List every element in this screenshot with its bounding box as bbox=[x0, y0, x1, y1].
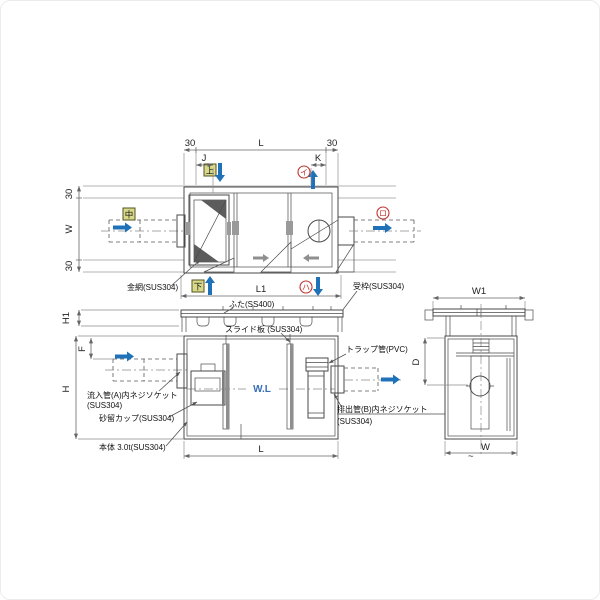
dim-W1: W1 bbox=[472, 286, 486, 297]
dim-H: H bbox=[61, 385, 72, 392]
marker-ro-label: ロ bbox=[379, 209, 387, 218]
lid-hook-1 bbox=[197, 317, 209, 326]
dim-L-plan: L bbox=[258, 138, 263, 149]
dim-W-side: W bbox=[481, 442, 490, 453]
dim-30-bottom: 30 bbox=[64, 261, 75, 272]
marker-top-inlet: 上 bbox=[204, 163, 225, 182]
partition-1-tab bbox=[232, 221, 239, 235]
slide-plate-label: スライド板 (SUS304) bbox=[225, 324, 303, 334]
dim-K: K bbox=[315, 153, 322, 164]
dotted-baffle-3 bbox=[336, 244, 354, 272]
body-label: 本体 3.0t(SUS304) bbox=[99, 442, 166, 452]
side-lid bbox=[425, 305, 533, 336]
dim-F: F bbox=[77, 346, 88, 352]
marker-top-label: 上 bbox=[206, 166, 215, 176]
marker-outlet-i: イ bbox=[298, 166, 318, 189]
H1-dimension: H1 bbox=[61, 310, 179, 326]
dim-30-left: 30 bbox=[185, 138, 196, 149]
dim-L-front: L bbox=[258, 444, 263, 455]
marker-outlet-ha: ハ bbox=[300, 277, 323, 296]
inlet-label-1: 流入管(A)内ネジソケット bbox=[87, 390, 178, 400]
marker-bottom-inlet: 下 bbox=[192, 276, 215, 295]
lid-label: ふた(SS400) bbox=[229, 300, 275, 309]
W1-dimension: W1 bbox=[433, 286, 525, 309]
wire-mesh-label: 金網(SUS304) bbox=[127, 282, 178, 292]
frame-leader bbox=[342, 291, 357, 311]
dim-30-right: 30 bbox=[327, 138, 338, 149]
inlet-label-2: (SUS304) bbox=[87, 401, 122, 410]
side-section-view: W1 D bbox=[411, 286, 533, 462]
side-W-dimension: ~ W bbox=[445, 441, 517, 462]
outlet-flow-arrow bbox=[381, 375, 400, 385]
basket-tab-right bbox=[227, 222, 231, 235]
dim-J: J bbox=[202, 153, 207, 164]
inlet-pipe-front bbox=[105, 352, 187, 389]
water-level-label: W.L bbox=[253, 384, 271, 395]
trap-pipe-label: トラップ管(PVC) bbox=[346, 344, 408, 354]
flow-arrow-out-ro bbox=[373, 223, 392, 233]
partition-2-tab bbox=[286, 221, 293, 235]
sand-trap-drawing: 上 中 下 イ ロ ハ bbox=[1, 1, 600, 600]
flow-arrow-out-ha bbox=[313, 277, 323, 296]
plan-left-dimensions: 30 W 30 bbox=[64, 186, 82, 272]
plan-view: 上 中 下 イ ロ ハ bbox=[64, 138, 421, 311]
outlet-label-2: (SUS304) bbox=[337, 417, 372, 426]
marker-bottom-label: 下 bbox=[194, 282, 203, 292]
technical-drawing-page: 上 中 下 イ ロ ハ bbox=[0, 0, 600, 600]
dim-L1: L1 bbox=[256, 284, 267, 295]
dim-D: D bbox=[411, 358, 422, 365]
marker-middle-label: 中 bbox=[125, 210, 134, 220]
dim-W-plan: W bbox=[64, 224, 75, 233]
inlet-pipe-plan bbox=[101, 215, 187, 247]
dim-30-top: 30 bbox=[64, 189, 75, 200]
marker-ha-label: ハ bbox=[302, 283, 310, 292]
marker-i-label: イ bbox=[300, 168, 308, 177]
basket-tab-left bbox=[186, 222, 190, 235]
sand-cup-label: 砂留カップ(SUS304) bbox=[99, 413, 174, 423]
flow-arrow-bottom-in bbox=[205, 276, 215, 295]
frame-label: 受枠(SUS304) bbox=[353, 281, 404, 291]
front-L-dimension: L bbox=[184, 441, 338, 459]
dim-H1: H1 bbox=[61, 312, 72, 324]
F-dimension: F bbox=[77, 338, 113, 359]
outlet-label-1: 排出管(B)内ネジソケット bbox=[337, 404, 428, 414]
inlet-flow-arrow bbox=[115, 352, 134, 362]
dim-W-approx: ~ bbox=[468, 451, 474, 462]
outlet-pipe-front bbox=[331, 366, 401, 393]
front-section-view: H1 W.L F H bbox=[61, 300, 447, 459]
